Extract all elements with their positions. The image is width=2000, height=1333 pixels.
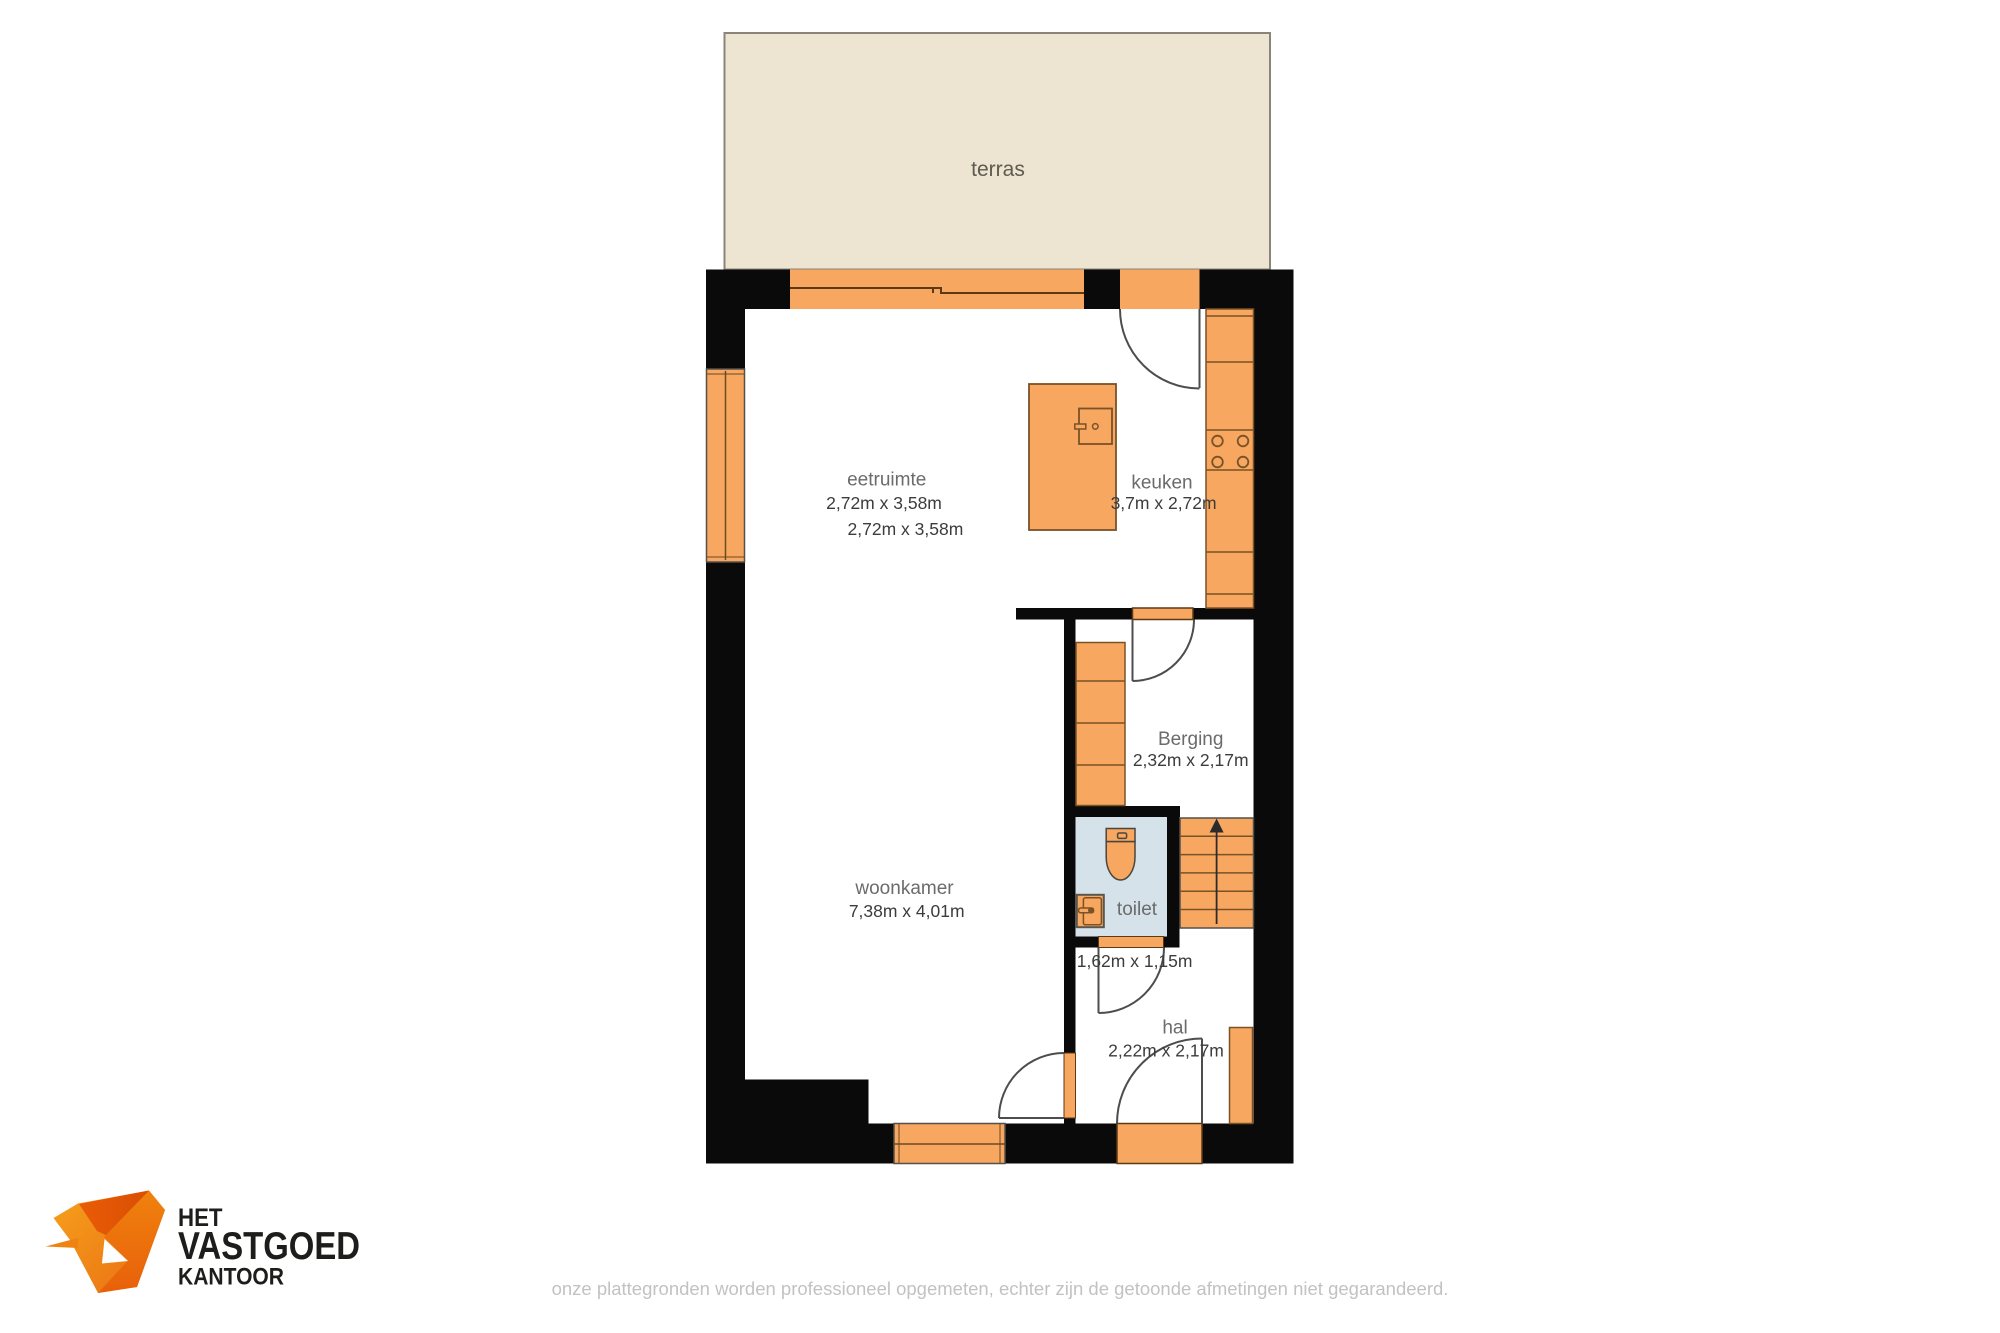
svg-text:onze plattegronden worden prof: onze plattegronden worden professioneel … xyxy=(552,1278,1449,1299)
svg-text:7,38m x 4,01m: 7,38m x 4,01m xyxy=(849,901,965,921)
svg-text:2,72m x 3,58m: 2,72m x 3,58m xyxy=(826,493,942,513)
svg-text:2,72m x 3,58m: 2,72m x 3,58m xyxy=(848,519,964,539)
svg-text:KANTOOR: KANTOOR xyxy=(178,1264,284,1291)
svg-text:1,62m x 1,15m: 1,62m x 1,15m xyxy=(1077,951,1193,971)
svg-text:keuken: keuken xyxy=(1131,473,1192,494)
svg-text:terras: terras xyxy=(971,158,1025,181)
svg-text:2,32m x 2,17m: 2,32m x 2,17m xyxy=(1133,750,1249,770)
svg-text:eetruimte: eetruimte xyxy=(847,470,926,491)
svg-text:hal: hal xyxy=(1162,1018,1187,1039)
svg-text:2,22m x 2,17m: 2,22m x 2,17m xyxy=(1108,1041,1224,1061)
svg-text:woonkamer: woonkamer xyxy=(854,878,954,899)
svg-text:Berging: Berging xyxy=(1158,729,1224,750)
svg-text:toilet: toilet xyxy=(1117,899,1158,920)
svg-text:3,7m x 2,72m: 3,7m x 2,72m xyxy=(1111,493,1217,513)
svg-text:VASTGOED: VASTGOED xyxy=(178,1225,360,1268)
